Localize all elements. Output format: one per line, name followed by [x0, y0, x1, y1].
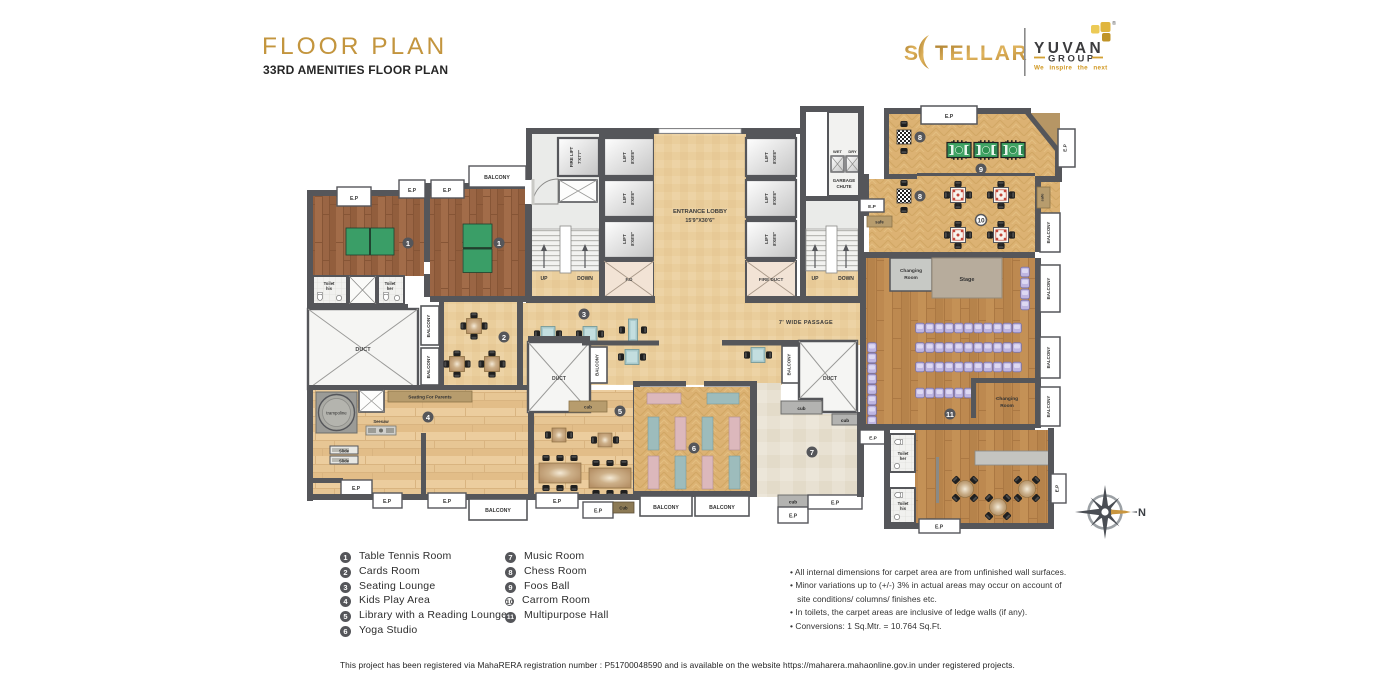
svg-text:3: 3 — [582, 310, 586, 319]
svg-text:E.P: E.P — [935, 525, 944, 531]
svg-text:9: 9 — [979, 165, 983, 174]
svg-text:Room: Room — [904, 275, 918, 281]
svg-text:Changing: Changing — [996, 396, 1018, 402]
svg-text:E.P: E.P — [1063, 143, 1069, 152]
svg-text:E.P: E.P — [408, 188, 417, 194]
svg-text:LIFT: LIFT — [622, 193, 627, 203]
svg-text:Cub: Cub — [619, 506, 628, 511]
svg-text:BALCONY: BALCONY — [484, 175, 510, 181]
svg-text:E.P: E.P — [352, 486, 361, 492]
svg-text:BALCONY: BALCONY — [653, 505, 679, 511]
svg-text:2: 2 — [502, 333, 506, 342]
svg-text:E.P: E.P — [553, 499, 562, 505]
svg-text:DUCT: DUCT — [823, 376, 837, 382]
svg-text:8: 8 — [918, 192, 922, 201]
svg-text:E.P: E.P — [383, 499, 392, 505]
svg-text:GARBAGE: GARBAGE — [833, 178, 856, 183]
svg-text:E.P: E.P — [350, 196, 359, 202]
svg-text:LIFT: LIFT — [622, 152, 627, 162]
svg-text:his: his — [326, 286, 333, 291]
svg-text:BALCONY: BALCONY — [426, 356, 431, 379]
svg-text:DUCT: DUCT — [355, 347, 371, 353]
svg-text:LIFT: LIFT — [622, 234, 627, 244]
svg-text:7' WIDE PASSAGE: 7' WIDE PASSAGE — [779, 320, 833, 326]
svg-text:N: N — [1138, 507, 1146, 519]
svg-text:8'X8'8": 8'X8'8" — [630, 232, 635, 246]
svg-text:DOWN: DOWN — [577, 276, 593, 282]
svg-text:BALCONY: BALCONY — [485, 508, 511, 514]
svg-text:7: 7 — [810, 448, 814, 457]
svg-text:BALCONY: BALCONY — [595, 354, 600, 376]
svg-text:BALCONY: BALCONY — [1046, 396, 1051, 418]
svg-text:6: 6 — [692, 444, 696, 453]
svg-text:E.P: E.P — [868, 204, 877, 210]
svg-text:Slide: Slide — [339, 459, 350, 464]
svg-text:LIFT: LIFT — [764, 234, 769, 244]
svg-text:DRY: DRY — [848, 149, 857, 154]
svg-text:8'X8'8": 8'X8'8" — [630, 191, 635, 205]
svg-text:8'X8'8": 8'X8'8" — [772, 191, 777, 205]
svg-text:BALCONY: BALCONY — [787, 354, 792, 376]
svg-text:ENTRANCE LOBBY: ENTRANCE LOBBY — [673, 209, 727, 215]
svg-text:cab: cab — [584, 405, 592, 410]
svg-text:E.P: E.P — [831, 501, 840, 507]
svg-text:Seating For Parents: Seating For Parents — [408, 395, 452, 400]
svg-text:E.P: E.P — [945, 114, 954, 120]
svg-text:her: her — [900, 456, 907, 461]
svg-text:WET: WET — [833, 149, 842, 154]
svg-text:BALCONY: BALCONY — [1046, 278, 1051, 300]
svg-text:E.P: E.P — [869, 436, 878, 442]
svg-text:safe: safe — [875, 220, 884, 225]
svg-text:BALCONY: BALCONY — [709, 505, 735, 511]
svg-text:Changing: Changing — [900, 268, 922, 274]
svg-text:cub: cub — [841, 418, 849, 423]
svg-text:8: 8 — [918, 133, 922, 142]
svg-text:15'9"X30'6": 15'9"X30'6" — [685, 218, 715, 224]
svg-text:cub: cub — [789, 500, 797, 505]
svg-text:F.D: F.D — [626, 277, 634, 282]
svg-text:8'X8'8": 8'X8'8" — [772, 150, 777, 164]
svg-text:1: 1 — [497, 239, 501, 248]
svg-text:FIRE DUCT: FIRE DUCT — [759, 277, 784, 282]
svg-text:E.P: E.P — [594, 509, 603, 515]
svg-text:UP: UP — [541, 276, 549, 282]
svg-text:BALCONY: BALCONY — [1046, 222, 1051, 244]
svg-text:BALCONY: BALCONY — [1046, 347, 1051, 369]
svg-text:her: her — [387, 286, 394, 291]
svg-text:BALCONY: BALCONY — [426, 315, 431, 338]
svg-text:trampoline: trampoline — [326, 411, 347, 416]
svg-text:LIFT: LIFT — [764, 193, 769, 203]
svg-text:8'X8'8": 8'X8'8" — [630, 150, 635, 164]
svg-text:FIRE LIFT: FIRE LIFT — [569, 146, 574, 167]
svg-text:1: 1 — [406, 239, 410, 248]
svg-text:E.P: E.P — [443, 188, 452, 194]
svg-text:UP: UP — [812, 276, 820, 282]
svg-text:LIFT: LIFT — [764, 152, 769, 162]
svg-text:Seesaw: Seesaw — [373, 419, 389, 424]
svg-text:safe: safe — [1040, 193, 1045, 202]
svg-text:5: 5 — [618, 407, 622, 416]
svg-text:E.P: E.P — [1055, 485, 1060, 492]
svg-text:E.P: E.P — [789, 514, 798, 520]
svg-text:7'X7'7": 7'X7'7" — [577, 150, 582, 164]
svg-text:his: his — [900, 506, 907, 511]
svg-text:E.P: E.P — [443, 499, 452, 505]
svg-text:DUCT: DUCT — [552, 376, 566, 382]
svg-text:CHUTE: CHUTE — [836, 184, 851, 189]
svg-text:10: 10 — [977, 218, 985, 225]
svg-text:DOWN: DOWN — [838, 276, 854, 282]
svg-text:cub: cub — [797, 406, 805, 411]
svg-text:Room: Room — [1000, 403, 1014, 409]
svg-text:Stage: Stage — [960, 277, 975, 283]
svg-text:11: 11 — [946, 410, 954, 419]
svg-text:8'X8'8": 8'X8'8" — [772, 232, 777, 246]
svg-text:Slide: Slide — [339, 449, 350, 454]
